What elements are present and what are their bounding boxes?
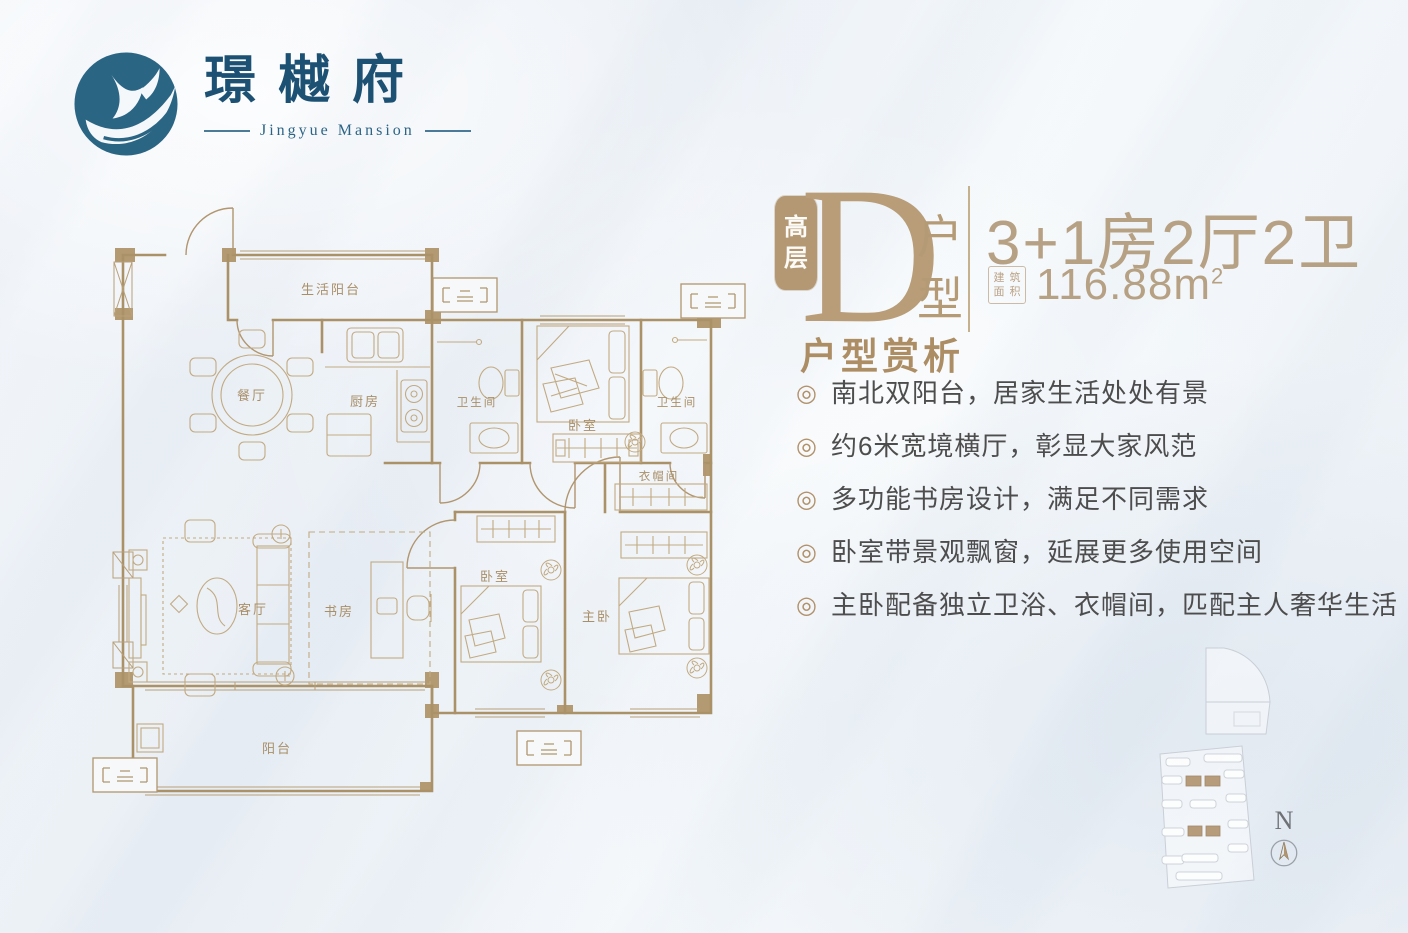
room-label-service-balcony: 生活阳台 (301, 282, 361, 297)
brand-name: 璟樾府 (204, 48, 471, 116)
type-char-2: 型 (917, 274, 963, 324)
unit-type-vertical: 户 型 (917, 212, 963, 324)
bullet-icon: ◎ (796, 378, 818, 409)
subtitle-rule-left (204, 130, 250, 132)
area-row: 建 筑 面 积 116.88m2 (988, 260, 1224, 310)
brand-subtitle: Jingyue Mansion (204, 122, 471, 140)
brand-header: 璟樾府 Jingyue Mansion (70, 48, 471, 160)
bullet-icon: ◎ (796, 484, 818, 515)
subtitle-rule-right (425, 130, 471, 132)
room-label-kitchen: 厨房 (350, 394, 380, 409)
feature-text: 主卧配备独立卫浴、衣帽间，匹配主人奢华生活 (831, 590, 1398, 621)
room-label-study: 书房 (324, 604, 354, 619)
feature-item: ◎约6米宽境横厅，彰显大家风范 (796, 431, 1398, 462)
room-label-master: 主卧 (582, 609, 612, 624)
room-label-cloakroom: 衣帽间 (639, 469, 680, 483)
area-stamp-char: 面 (992, 286, 1007, 299)
room-label-bedroom-2: 卧室 (480, 569, 510, 584)
floorplan-drawing: 生活阳台 餐厅 厨房 卫生间 卧室 卫生间 衣帽间 客厅 书房 卧室 主卧 阳台 (85, 190, 765, 810)
feature-text: 约6米宽境横厅，彰显大家风范 (831, 431, 1197, 462)
feature-item: ◎南北双阳台，居家生活处处有景 (796, 378, 1398, 409)
feature-item: ◎卧室带景观飘窗，延展更多使用空间 (796, 537, 1398, 568)
area-exponent: 2 (1211, 263, 1224, 288)
brand-subtitle-label: Jingyue Mansion (260, 122, 415, 140)
bullet-icon: ◎ (796, 537, 818, 568)
area-stamp-char: 筑 (1008, 272, 1023, 285)
room-label-bath-1: 卫生间 (457, 395, 498, 409)
feature-text: 多功能书房设计，满足不同需求 (831, 484, 1209, 515)
room-label-dining: 餐厅 (237, 388, 267, 403)
room-label-bath-2: 卫生间 (657, 395, 698, 409)
compass: N (1262, 806, 1306, 878)
feature-item: ◎多功能书房设计，满足不同需求 (796, 484, 1398, 515)
feature-item: ◎主卧配备独立卫浴、衣帽间，匹配主人奢华生活 (796, 590, 1398, 621)
page: 璟樾府 Jingyue Mansion 高 层 D 户 型 3+1房2厅2卫 建… (0, 0, 1408, 933)
compass-needle-icon (1267, 836, 1301, 870)
type-char-1: 户 (917, 212, 963, 262)
bullet-icon: ◎ (796, 590, 818, 621)
area-stamp-char: 建 (992, 272, 1007, 285)
room-label-bedroom-1: 卧室 (568, 418, 598, 433)
features-list: ◎南北双阳台，居家生活处处有景 ◎约6米宽境横厅，彰显大家风范 ◎多功能书房设计… (796, 378, 1398, 643)
furniture (129, 326, 709, 752)
walls (123, 255, 711, 791)
compass-north-label: N (1275, 806, 1294, 836)
bay-window-markers (93, 278, 745, 792)
brand-text: 璟樾府 Jingyue Mansion (204, 48, 471, 140)
unit-area: 116.88m2 (1036, 260, 1224, 310)
room-label-living: 客厅 (238, 602, 268, 617)
room-label-balcony: 阳台 (262, 741, 292, 756)
brand-logo-icon (70, 48, 182, 160)
area-stamp-char: 积 (1008, 286, 1023, 299)
title-divider (968, 186, 970, 332)
feature-text: 南北双阳台，居家生活处处有景 (831, 378, 1209, 409)
area-number: 116.88m (1036, 260, 1211, 309)
feature-text: 卧室带景观飘窗，延展更多使用空间 (831, 537, 1263, 568)
area-stamp: 建 筑 面 积 (988, 266, 1026, 304)
features-heading: 户型赏析 (800, 326, 964, 380)
bullet-icon: ◎ (796, 431, 818, 462)
